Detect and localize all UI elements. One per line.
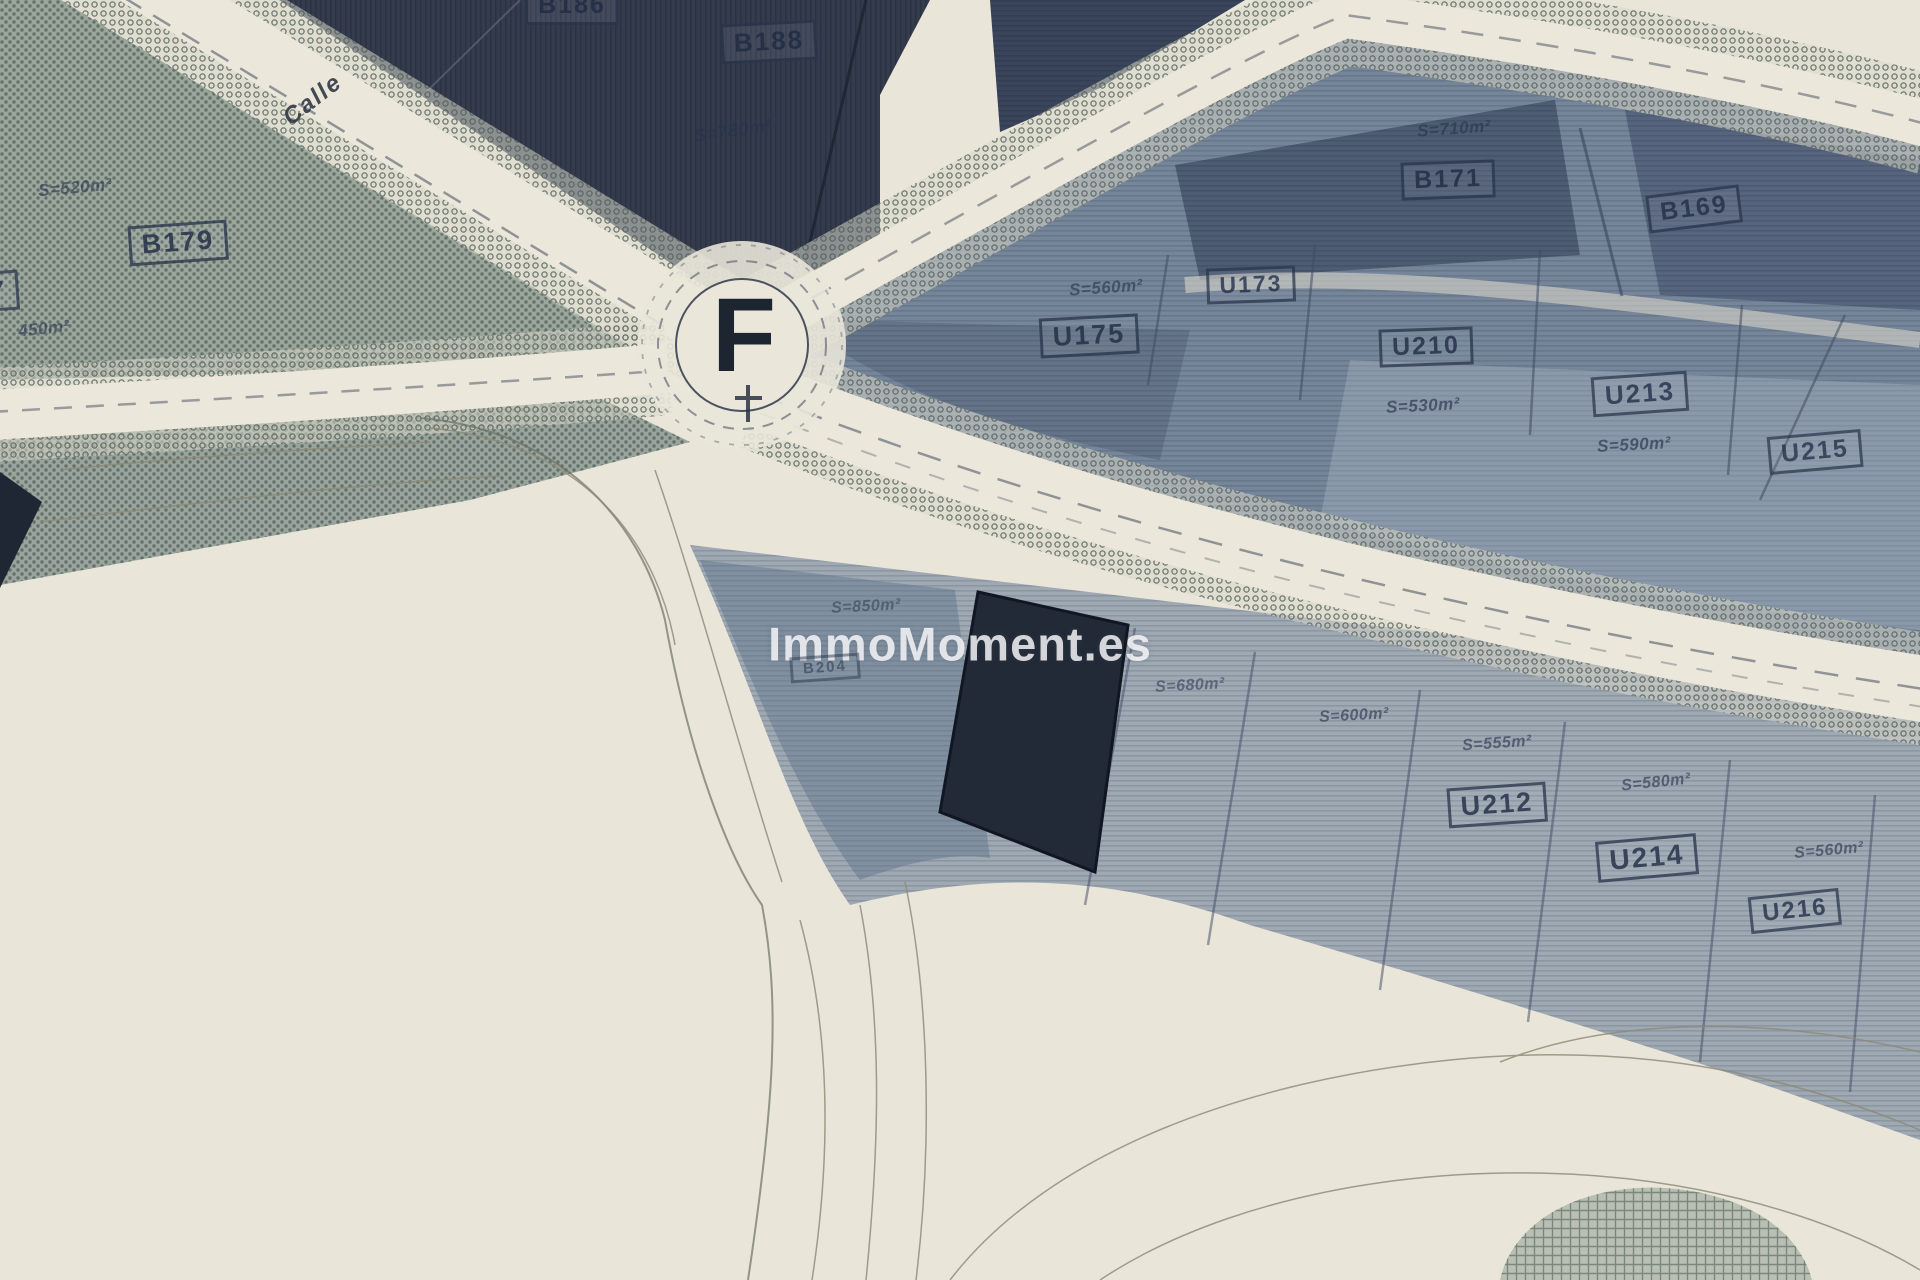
- plan-map-photo: F Calle ImmoMoment.es B186B188S=780m²S=5…: [0, 0, 1920, 1280]
- watermark: ImmoMoment.es: [768, 617, 1152, 672]
- roundabout: [638, 241, 846, 449]
- road-left: [0, 368, 668, 415]
